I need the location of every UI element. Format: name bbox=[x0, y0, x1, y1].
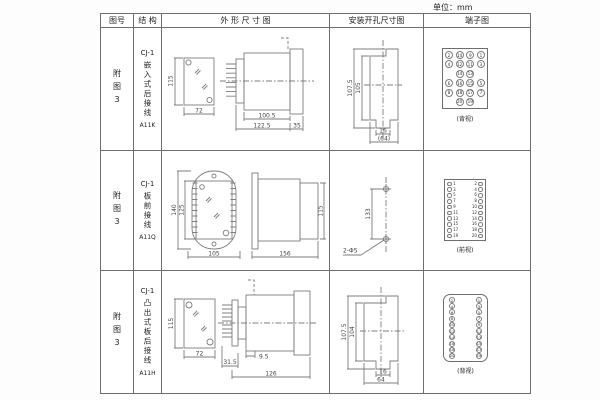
terminal-row: 1615 bbox=[449, 341, 482, 347]
terminal-number: 20 bbox=[472, 234, 477, 238]
terminal-diagram-a11q: 12 34 56 78 910 1112 1314 1516 1718 1920… bbox=[424, 151, 530, 271]
dim-label: 64 bbox=[377, 377, 385, 384]
terminal-row: 1718 bbox=[447, 228, 483, 233]
terminal-row: 21091 bbox=[445, 51, 485, 59]
dim-label: 72 bbox=[196, 351, 204, 358]
terminal-circle: 13 bbox=[476, 334, 482, 340]
terminal-circle: 16 bbox=[456, 79, 464, 87]
outline-drawing-a11q: 140 125 105 156 115 bbox=[162, 151, 330, 270]
terminal-row: 34 bbox=[447, 187, 483, 192]
fig-no-cell-a11q: 附图3 bbox=[101, 151, 134, 271]
terminal-number: 3 bbox=[453, 188, 456, 192]
unit-label: 单位：mm bbox=[433, 2, 473, 13]
terminal-circle: 17 bbox=[466, 89, 474, 97]
dim-label: 122.5 bbox=[253, 123, 270, 130]
outline-diagram-a11k: 115 72 100.5 122.5 35 bbox=[162, 28, 330, 151]
structure-code: A11K bbox=[140, 122, 156, 129]
terminal-number: 14 bbox=[472, 217, 477, 221]
dim-label: 156 bbox=[279, 251, 291, 258]
terminal-circle bbox=[478, 211, 483, 216]
header-terminal: 端子图 bbox=[424, 14, 530, 28]
outline-diagram-a11h: 115 72 9.5 31.5 126 bbox=[162, 271, 330, 393]
header-fig-no: 图号 bbox=[101, 14, 134, 28]
model-label: CJ-1 bbox=[141, 180, 155, 188]
dim-label: 133 bbox=[365, 208, 372, 220]
terminal-circle: 7 bbox=[477, 89, 485, 97]
dim-label: 115 bbox=[168, 318, 175, 330]
structure-code: A11Q bbox=[139, 234, 155, 241]
front-view bbox=[174, 299, 215, 359]
outline-drawing-a11k: 115 72 100.5 122.5 35 bbox=[162, 28, 330, 150]
terminal-circle: 1 bbox=[477, 51, 485, 59]
terminal-circle: 19 bbox=[466, 98, 474, 106]
mounting-drawing-a11k: 107.5 105 16 (64) bbox=[330, 28, 424, 150]
terminal-circle: 13 bbox=[466, 70, 474, 78]
terminal-circle: 17 bbox=[476, 347, 482, 353]
terminal-row: 56 bbox=[447, 193, 483, 198]
terminal-circle bbox=[478, 216, 483, 221]
terminal-circle: 5 bbox=[476, 309, 482, 315]
terminal-circle: 20 bbox=[449, 353, 455, 359]
terminal-row: 12 bbox=[447, 182, 483, 187]
structure-name: 嵌入式后接线 bbox=[142, 61, 153, 118]
terminal-circle bbox=[478, 222, 483, 227]
terminal-row: 2019 bbox=[445, 98, 485, 106]
structure-cell-a11k: CJ-1 嵌入式后接线 A11K bbox=[134, 28, 162, 151]
dim-label: 107.5 bbox=[347, 79, 354, 96]
terminal-number: 19 bbox=[453, 234, 458, 238]
terminal-circle: 2 bbox=[449, 297, 455, 303]
terminal-circle: 20 bbox=[456, 98, 464, 106]
terminal-circle bbox=[478, 228, 483, 233]
terminal-circle: 14 bbox=[456, 70, 464, 78]
header-outline: 外 形 尺 寸 图 bbox=[162, 14, 330, 28]
structure-name: 凸出式板后接线 bbox=[142, 299, 153, 366]
terminal-circle: 2 bbox=[445, 51, 453, 59]
terminal-circle bbox=[447, 211, 452, 216]
terminal-circle: 12 bbox=[449, 328, 455, 334]
terminal-row: 1413 bbox=[449, 334, 482, 340]
terminal-row: 616155 bbox=[445, 79, 485, 87]
terminal-circle bbox=[447, 222, 452, 227]
terminal-circle: 7 bbox=[476, 316, 482, 322]
terminal-block: 12 34 56 78 910 1112 1314 1516 1718 1920 bbox=[444, 179, 486, 241]
terminal-row: 1211 bbox=[449, 328, 482, 334]
side-view bbox=[252, 173, 326, 259]
terminal-circle bbox=[447, 228, 452, 233]
terminal-circle: 15 bbox=[476, 341, 482, 347]
terminal-number: 6 bbox=[474, 193, 477, 197]
header-structure: 结 构 bbox=[134, 14, 162, 28]
view-label: (前视) bbox=[444, 245, 486, 254]
dim-label: 35 bbox=[293, 123, 301, 130]
terminal-row: 87 bbox=[449, 316, 482, 322]
view-label: (背视) bbox=[443, 366, 488, 375]
terminal-circle: 4 bbox=[449, 303, 455, 309]
terminal-number: 18 bbox=[472, 228, 477, 232]
terminal-circle bbox=[478, 205, 483, 210]
dim-label: 126 bbox=[265, 371, 277, 378]
terminal-row: 1516 bbox=[447, 222, 483, 227]
dim-label: 125 bbox=[179, 204, 186, 216]
terminal-row: 1817 bbox=[449, 347, 482, 353]
terminal-circle: 6 bbox=[445, 79, 453, 87]
terminal-number: 2 bbox=[474, 182, 477, 186]
fig-no-text: 附图3 bbox=[112, 69, 123, 109]
dim-label: 115 bbox=[168, 75, 175, 87]
terminal-circle bbox=[478, 193, 483, 198]
terminal-block: 21091 412113 1413 616155 818177 2019 bbox=[442, 48, 488, 109]
terminal-circle: 5 bbox=[477, 79, 485, 87]
terminal-circle: 9 bbox=[476, 322, 482, 328]
terminal-circle: 3 bbox=[477, 60, 485, 68]
terminal-circle: 8 bbox=[445, 89, 453, 97]
terminal-circle: 18 bbox=[456, 89, 464, 97]
dim-label: 9.5 bbox=[259, 354, 269, 361]
terminal-number: 15 bbox=[453, 222, 458, 226]
structure-cell-a11h: CJ-1 凸出式板后接线 A11H bbox=[134, 271, 162, 393]
terminal-circle: 9 bbox=[466, 51, 474, 59]
terminal-circle: 16 bbox=[449, 341, 455, 347]
terminal-row: 78 bbox=[447, 199, 483, 204]
terminal-row: 109 bbox=[449, 322, 482, 328]
terminal-circle bbox=[478, 234, 483, 239]
view-label: (背视) bbox=[442, 114, 488, 123]
terminal-circle bbox=[447, 193, 452, 198]
model-label: CJ-1 bbox=[141, 287, 155, 295]
terminal-circle bbox=[478, 199, 483, 204]
terminal-circle bbox=[447, 216, 452, 221]
terminal-row: 21 bbox=[449, 297, 482, 303]
fig-no-cell-a11h: 附图3 bbox=[101, 271, 134, 393]
fig-no-text: 附图3 bbox=[112, 191, 123, 231]
dim-label: 31.5 bbox=[223, 359, 237, 366]
terminal-number: 7 bbox=[453, 199, 456, 203]
terminal-row: 65 bbox=[449, 309, 482, 315]
terminal-circle: 11 bbox=[466, 60, 474, 68]
header-mounting: 安装开孔尺寸图 bbox=[330, 14, 424, 28]
terminal-row: 1920 bbox=[447, 234, 483, 239]
terminal-number: 10 bbox=[472, 205, 477, 209]
fig-no-text: 附图3 bbox=[112, 312, 123, 352]
dim-label: 104 bbox=[349, 326, 356, 338]
structure-name: 板前接线 bbox=[142, 192, 153, 230]
dim-label: 16 bbox=[379, 369, 387, 376]
terminal-circle bbox=[447, 234, 452, 239]
mounting-diagram-a11q: 133 2-Φ5 bbox=[330, 151, 424, 271]
terminal-number: 16 bbox=[472, 222, 477, 226]
terminal-circle bbox=[478, 182, 483, 187]
dim-label: 72 bbox=[195, 108, 203, 115]
dim-label: (64) bbox=[378, 136, 390, 143]
terminal-circle bbox=[447, 199, 452, 204]
terminal-circle bbox=[447, 187, 452, 192]
terminal-number: 8 bbox=[474, 199, 477, 203]
terminal-circle bbox=[447, 205, 452, 210]
dim-label: 105 bbox=[208, 251, 220, 258]
dimension-table: 图号 结 构 外 形 尺 寸 图 安装开孔尺寸图 端子图 附图3 CJ-1 嵌入… bbox=[100, 13, 531, 394]
terminal-circle: 4 bbox=[445, 60, 453, 68]
terminal-row: 1413 bbox=[445, 70, 485, 78]
terminal-circle: 12 bbox=[456, 60, 464, 68]
terminal-circle: 19 bbox=[476, 353, 482, 359]
terminal-circle: 1 bbox=[476, 297, 482, 303]
dim-label: 105 bbox=[355, 82, 362, 94]
dim-label: 140 bbox=[171, 204, 178, 216]
mounting-diagram-a11h: 107.5 104 16 64 bbox=[330, 271, 424, 393]
terminal-circle: 11 bbox=[476, 328, 482, 334]
structure-cell-a11q: CJ-1 板前接线 A11Q bbox=[134, 151, 162, 271]
dim-label: 100.5 bbox=[258, 113, 275, 120]
terminal-circle: 6 bbox=[449, 309, 455, 315]
terminal-row: 1112 bbox=[447, 211, 483, 216]
structure-code: A11H bbox=[139, 370, 155, 377]
terminal-circle: 10 bbox=[456, 51, 464, 59]
dim-label: 16 bbox=[379, 128, 387, 135]
terminal-diagram-a11k: 21091 412113 1413 616155 818177 2019 (背视… bbox=[424, 28, 530, 151]
terminal-row: 910 bbox=[447, 205, 483, 210]
terminal-circle: 14 bbox=[449, 334, 455, 340]
terminal-circle: 10 bbox=[449, 322, 455, 328]
front-view bbox=[177, 171, 240, 259]
mounting-drawing-a11h: 107.5 104 16 64 bbox=[330, 271, 424, 392]
front-view bbox=[174, 58, 214, 116]
terminal-number: 12 bbox=[472, 211, 477, 215]
outline-diagram-a11q: 140 125 105 156 115 bbox=[162, 151, 330, 271]
terminal-number: 1 bbox=[453, 182, 456, 186]
terminal-row: 412113 bbox=[445, 60, 485, 68]
terminal-circle: 15 bbox=[466, 79, 474, 87]
terminal-row: 818177 bbox=[445, 89, 485, 97]
terminal-row: 43 bbox=[449, 303, 482, 309]
terminal-number: 5 bbox=[453, 193, 456, 197]
dim-label: 107.5 bbox=[341, 323, 348, 340]
datasheet-page: 单位：mm 图号 结 构 外 形 尺 寸 图 安装开孔尺寸图 端子图 附图3 C… bbox=[0, 0, 600, 400]
terminal-circle bbox=[447, 182, 452, 187]
mounting-drawing-a11q: 133 2-Φ5 bbox=[330, 151, 424, 270]
terminal-circle: 8 bbox=[449, 316, 455, 322]
terminal-number: 9 bbox=[453, 205, 456, 209]
terminal-diagram-a11h: 21 43 65 87 109 1211 1413 1615 1817 2019… bbox=[424, 271, 530, 393]
terminal-number: 4 bbox=[474, 188, 477, 192]
dim-label: 115 bbox=[318, 205, 325, 217]
fig-no-cell-a11k: 附图3 bbox=[101, 28, 134, 151]
terminal-circle: 3 bbox=[476, 303, 482, 309]
terminal-row: 1314 bbox=[447, 216, 483, 221]
terminal-number: 11 bbox=[453, 211, 458, 215]
terminal-number: 17 bbox=[453, 228, 458, 232]
terminal-block: 21 43 65 87 109 1211 1413 1615 1817 2019 bbox=[443, 294, 488, 362]
dim-label: 2-Φ5 bbox=[343, 248, 358, 255]
mounting-diagram-a11k: 107.5 105 16 (64) bbox=[330, 28, 424, 151]
terminal-circle: 18 bbox=[449, 347, 455, 353]
terminal-number: 13 bbox=[453, 217, 458, 221]
terminal-row: 2019 bbox=[449, 353, 482, 359]
terminal-circle bbox=[478, 187, 483, 192]
outline-drawing-a11h: 115 72 9.5 31.5 126 bbox=[162, 271, 330, 392]
model-label: CJ-1 bbox=[141, 49, 155, 57]
